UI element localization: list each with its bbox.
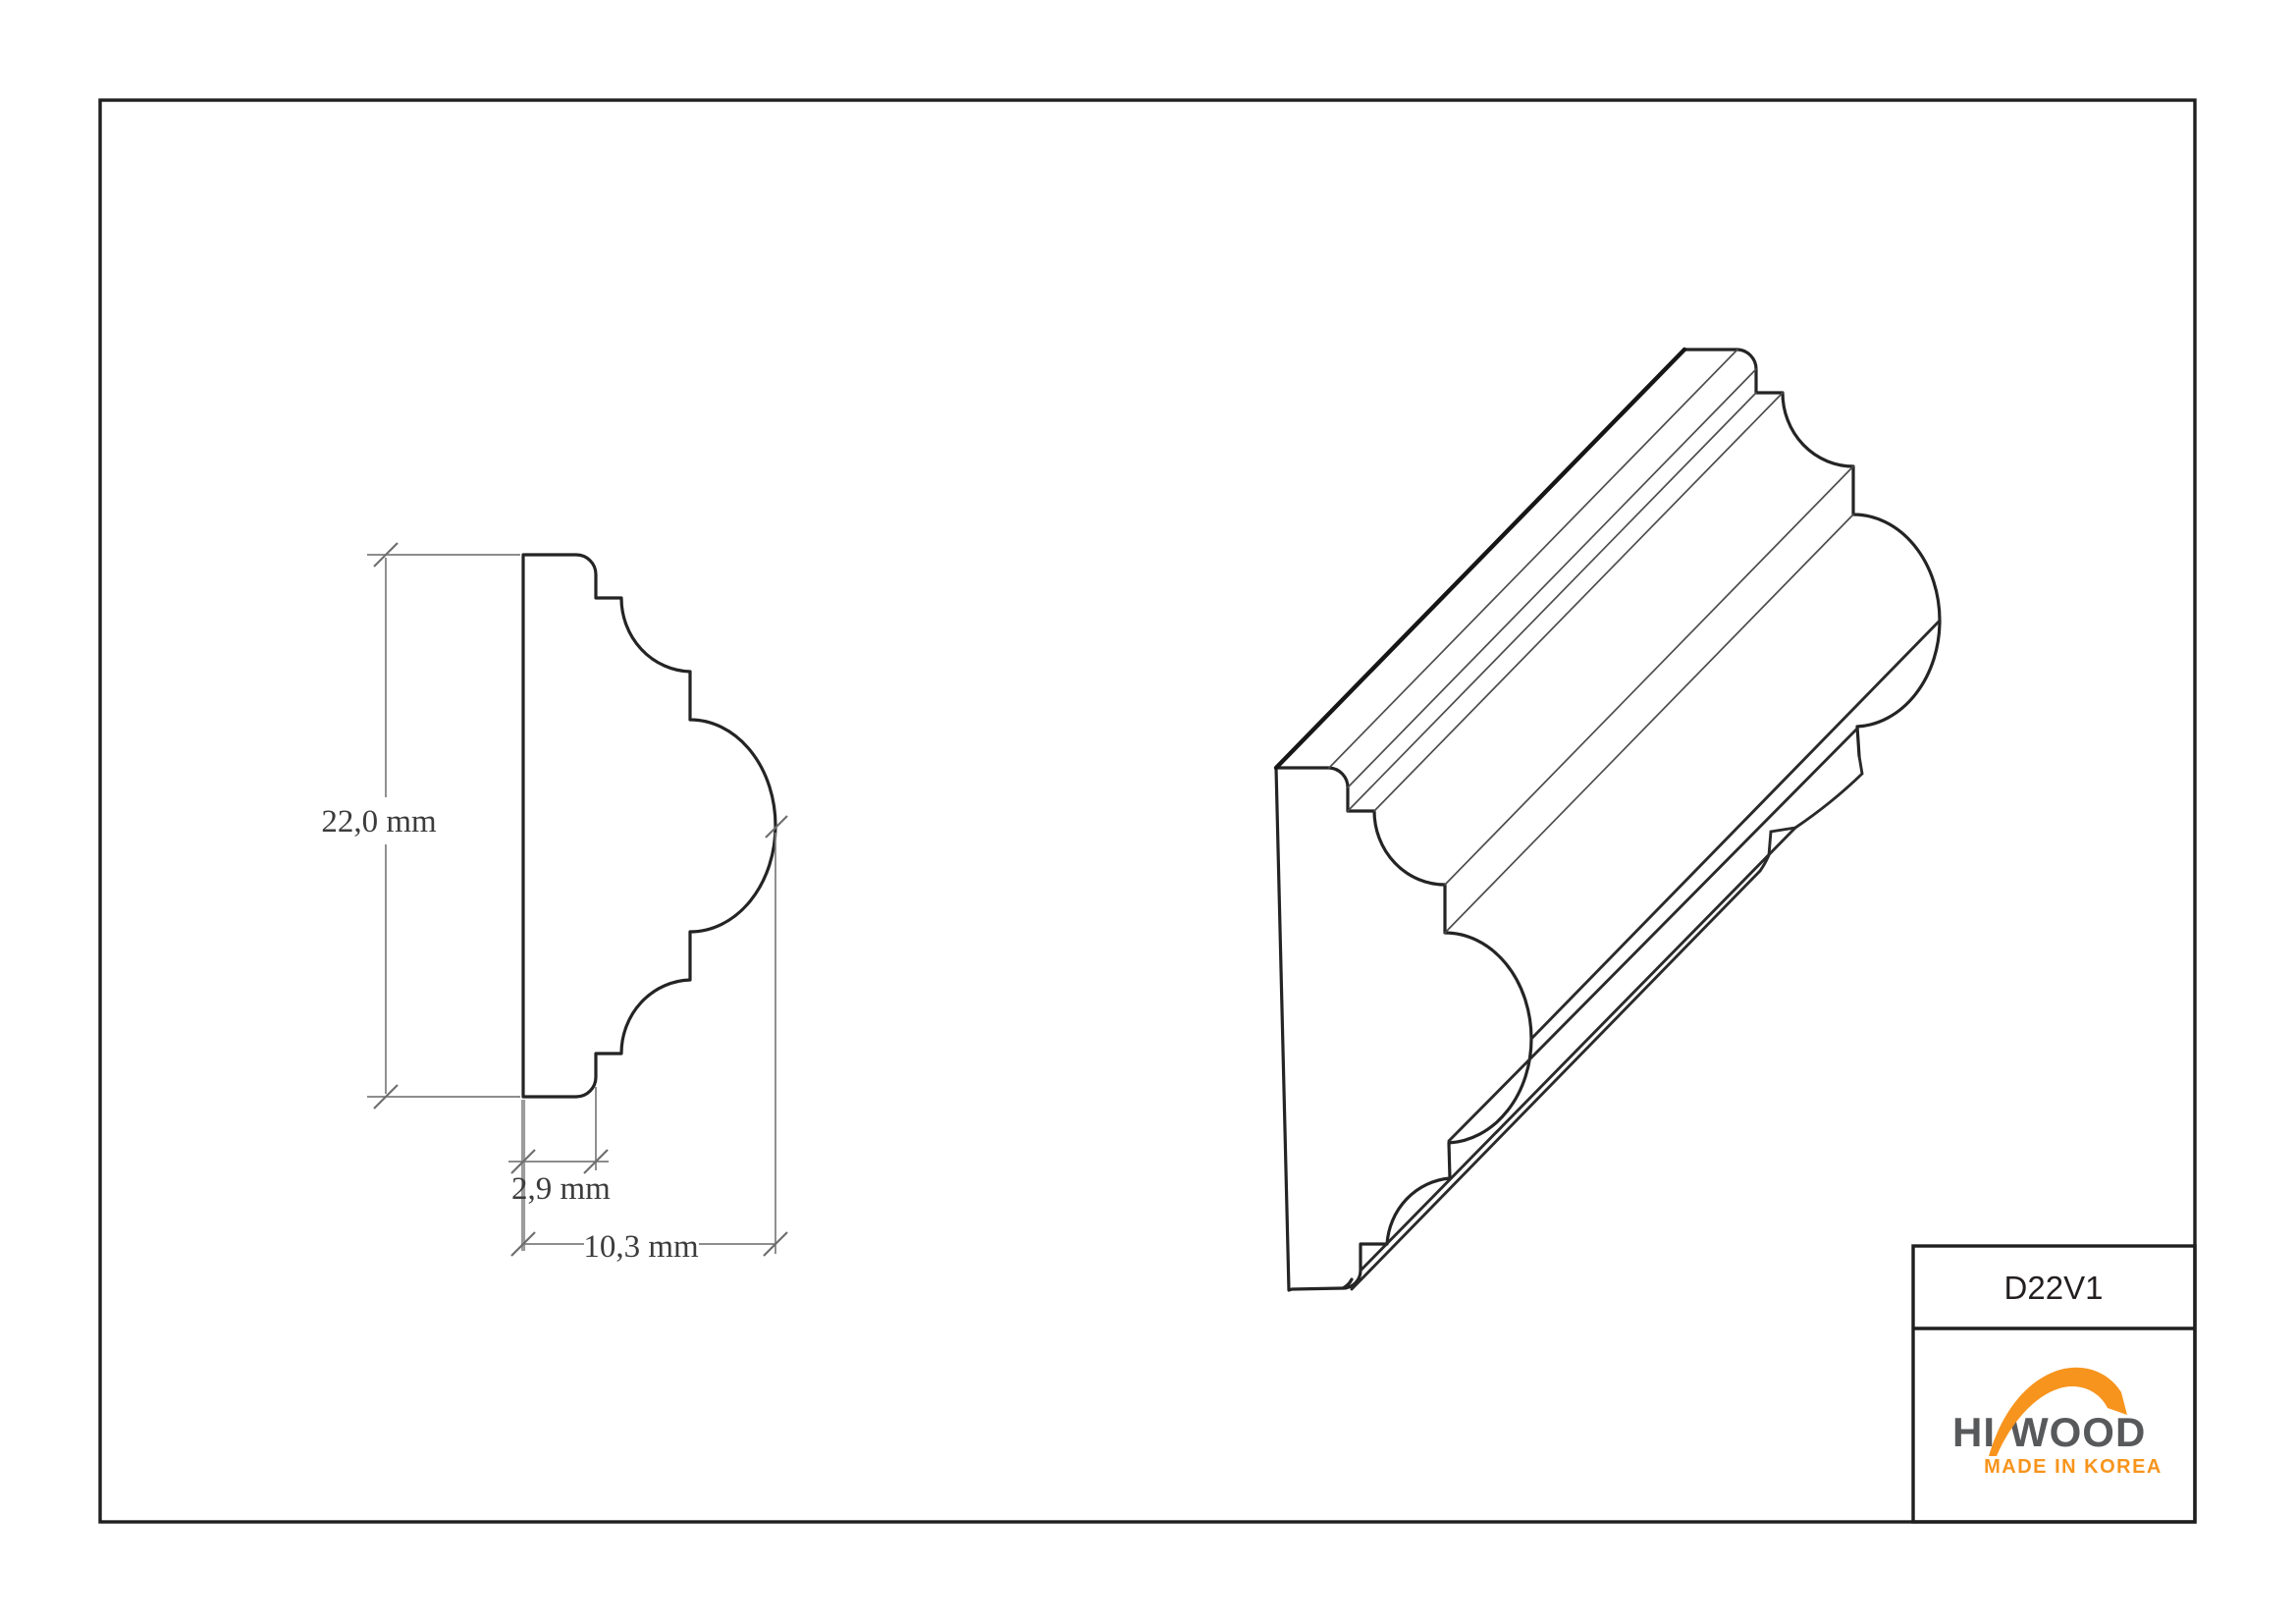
drawing-sheet: 22,0 mm 2,9 mm 10,3 mm: [0, 0, 2296, 1624]
dim-depth-label: 10,3 mm: [583, 1229, 699, 1265]
logo-tagline: MADE IN KOREA: [1984, 1456, 2163, 1478]
bulge-lower-tangent: [1449, 729, 1857, 1141]
bulge-top-crease: [1445, 514, 1853, 933]
isometric-3d-view: [1276, 350, 1940, 1290]
back-top-edge: [1276, 350, 1684, 768]
drawing-canvas: 22,0 mm 2,9 mm 10,3 mm: [0, 0, 2296, 1624]
near-end-face: [1276, 768, 1531, 1290]
dim-thickness-label: 2,9 mm: [511, 1171, 611, 1207]
far-end-face: [1684, 350, 1940, 756]
profile-outline: [523, 555, 775, 1097]
part-number: D22V1: [2004, 1270, 2104, 1306]
notch-bottom-crease: [1348, 393, 1756, 811]
bulge-apex-ridge: [1531, 621, 1940, 1039]
hiwood-logo: HI WOOD MADE IN KOREA: [1952, 1368, 2163, 1478]
bottom-front-edge: [1352, 871, 1760, 1289]
logo-word-wood: WOOD: [2009, 1409, 2146, 1455]
logo-word-hi: HI: [1952, 1409, 1996, 1455]
dim-height-label: 22,0 mm: [321, 804, 437, 839]
top-corner-crease: [1329, 350, 1737, 768]
dimension-height: 22,0 mm: [321, 543, 520, 1109]
title-block: D22V1 HI WOOD MADE IN KOREA: [1913, 1246, 2195, 1522]
dimension-thickness: 2,9 mm: [508, 1087, 611, 1251]
corner-tangent-crease: [1348, 369, 1756, 787]
profile-2d-view: [523, 555, 775, 1097]
lower-notch-edge: [1361, 828, 1795, 1271]
